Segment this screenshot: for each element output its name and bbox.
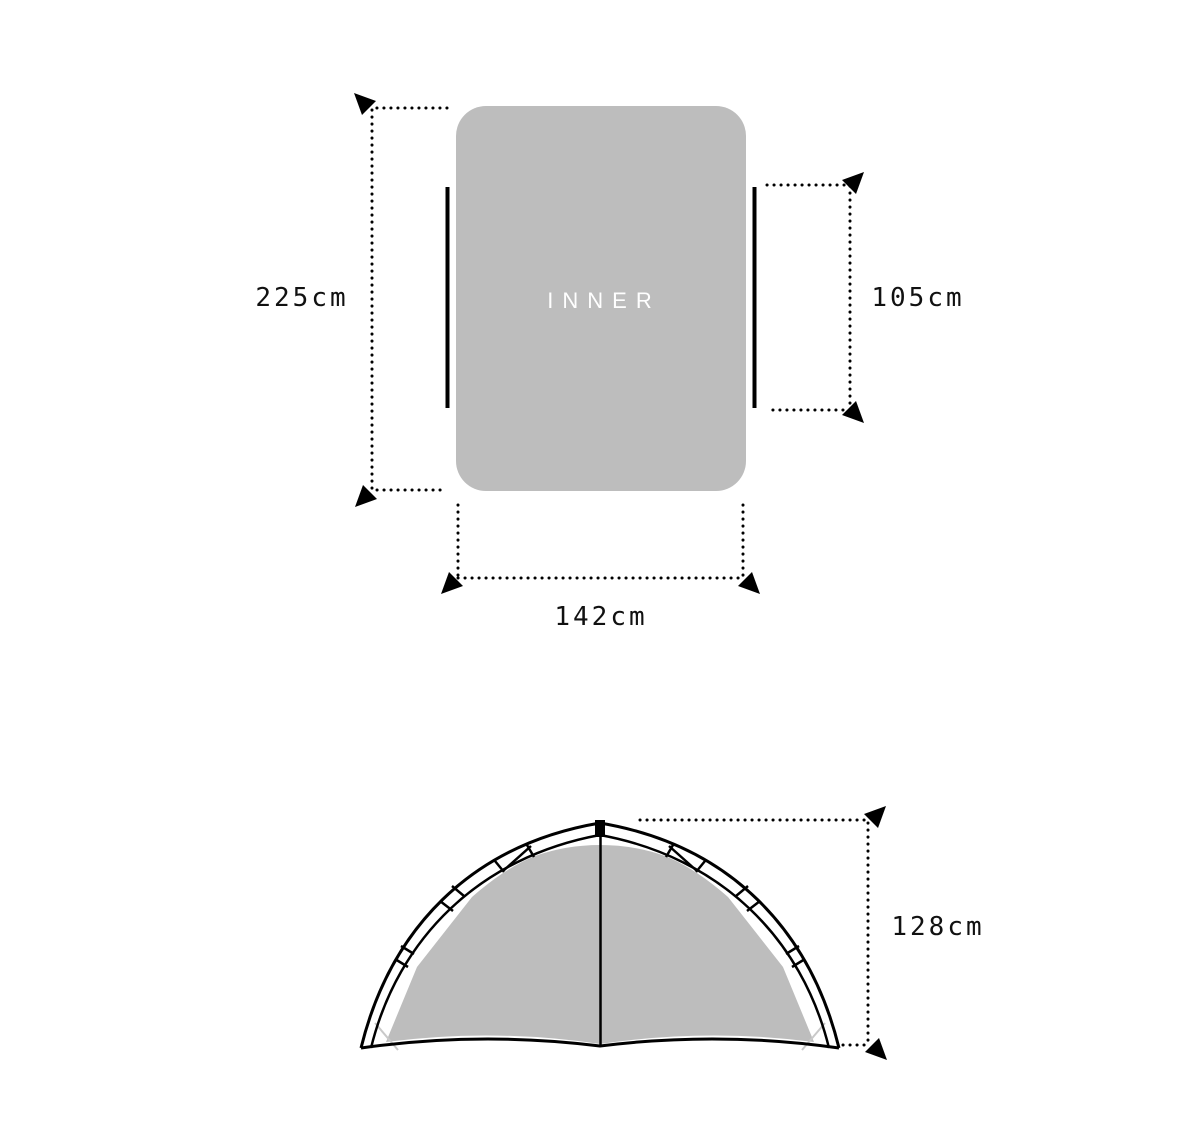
inner-floor-label: INNER [547, 288, 660, 314]
dim-width-dotted-line [458, 505, 743, 578]
dim-door-dotted-line [767, 185, 850, 410]
dim-width-arrow-left [441, 572, 463, 594]
top-view-group [354, 93, 864, 594]
tent-dimension-diagram: 225cm 105cm 142cm 128cm INNER [0, 0, 1200, 1148]
dim-length-arrow-bottom [355, 485, 377, 507]
dim-height-arrow-top [864, 806, 886, 828]
front-view-group [361, 806, 887, 1060]
door-height-dimension-label: 105cm [871, 283, 964, 313]
apex-hub [595, 820, 605, 837]
dim-door-arrow-bottom [842, 401, 864, 423]
length-dimension-label: 225cm [255, 283, 348, 313]
diagram-graphics [0, 0, 1200, 1148]
dim-length-dotted-line [372, 108, 447, 490]
height-dimension-label: 128cm [891, 912, 984, 942]
dim-door-arrow-top [842, 172, 864, 194]
width-dimension-label: 142cm [554, 602, 647, 632]
dim-length-arrow-top [354, 93, 376, 115]
dim-width-arrow-right [738, 572, 760, 594]
